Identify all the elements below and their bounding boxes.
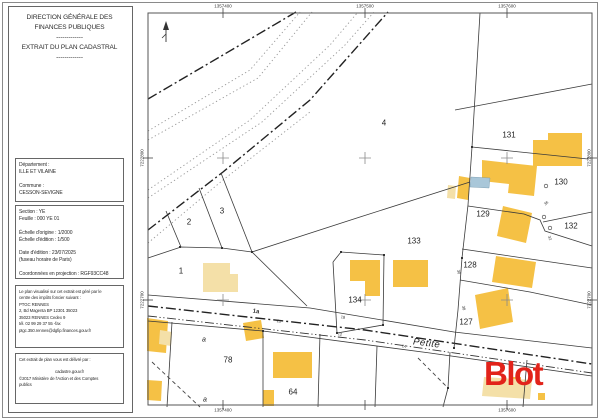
boundary-vertex-dot — [179, 246, 181, 248]
map-frame — [143, 8, 597, 410]
boundary-vertex-dot — [382, 324, 384, 326]
boundary-vertex-dot — [262, 330, 264, 332]
parcel-boundary-line — [148, 12, 374, 198]
parcel-boundary-line — [148, 295, 592, 348]
boundary-vertex-dot — [447, 387, 449, 389]
parcel-boundary-line — [543, 212, 592, 222]
boundary-vertex-dot — [383, 254, 385, 256]
boundary-vertex-dot — [461, 257, 463, 259]
parcel-boundary-line — [148, 12, 296, 99]
cadastral-extract-page: DIRECTION GÉNÉRALE DESFINANCES PUBLIQUES… — [0, 0, 600, 420]
building-footprint — [350, 260, 380, 296]
building-footprint — [393, 260, 428, 287]
parcel-boundary-line — [148, 112, 310, 243]
building-footprint — [263, 390, 274, 406]
parcel-boundary-line — [468, 206, 592, 246]
parcel-boundary-line — [148, 321, 592, 376]
parcel-boundary-line — [148, 12, 388, 230]
building-footprint — [147, 380, 162, 401]
parcel-boundary-line — [443, 352, 450, 407]
boundary-vertex-dot — [221, 247, 223, 249]
boundary-vertex-dot — [340, 251, 342, 253]
survey-point-circle — [542, 215, 546, 219]
grid-cross — [359, 152, 371, 164]
parcel-boundary-line — [375, 346, 377, 407]
parcel-boundary-line — [148, 12, 358, 190]
parcel-boundary-line — [318, 334, 320, 407]
parcel-boundary-line — [252, 252, 307, 306]
building-footprint — [533, 133, 582, 166]
north-arrow-icon — [162, 21, 169, 42]
building-footprint — [497, 206, 532, 243]
building-footprint — [538, 393, 545, 400]
parcel-boundary-line — [148, 12, 312, 140]
building-footprint — [457, 176, 470, 200]
boundary-vertex-dot — [471, 146, 473, 148]
parcel-boundary-line — [148, 247, 252, 258]
building-footprint — [492, 256, 536, 288]
map-border — [148, 13, 592, 405]
parcel-boundary-line — [221, 173, 252, 252]
parcel-boundary-line — [148, 12, 300, 131]
cadastral-map — [0, 0, 600, 420]
boundary-vertex-dot — [251, 251, 253, 253]
survey-point-circle — [544, 184, 548, 188]
parcel-boundary-line — [199, 188, 222, 248]
parcel-boundary-line — [148, 316, 592, 373]
parcel-boundary-line — [418, 358, 448, 388]
parcel-boundaries-layer — [148, 12, 592, 407]
grid-cross — [501, 152, 513, 164]
swimming-pool — [470, 177, 490, 188]
survey-point-circle — [548, 226, 552, 230]
boundary-vertex-dot — [453, 347, 455, 349]
grid-cross — [217, 294, 229, 306]
parcel-boundary-line — [252, 182, 470, 252]
parcel-boundary-line — [148, 306, 592, 364]
light-building-footprint — [203, 263, 238, 292]
building-footprint — [273, 352, 312, 378]
parcel-boundary-line — [166, 211, 181, 247]
building-footprint — [482, 160, 537, 196]
light-building-footprint — [159, 330, 172, 346]
grid-cross — [217, 152, 229, 164]
boundary-vertex-dot — [336, 332, 338, 334]
